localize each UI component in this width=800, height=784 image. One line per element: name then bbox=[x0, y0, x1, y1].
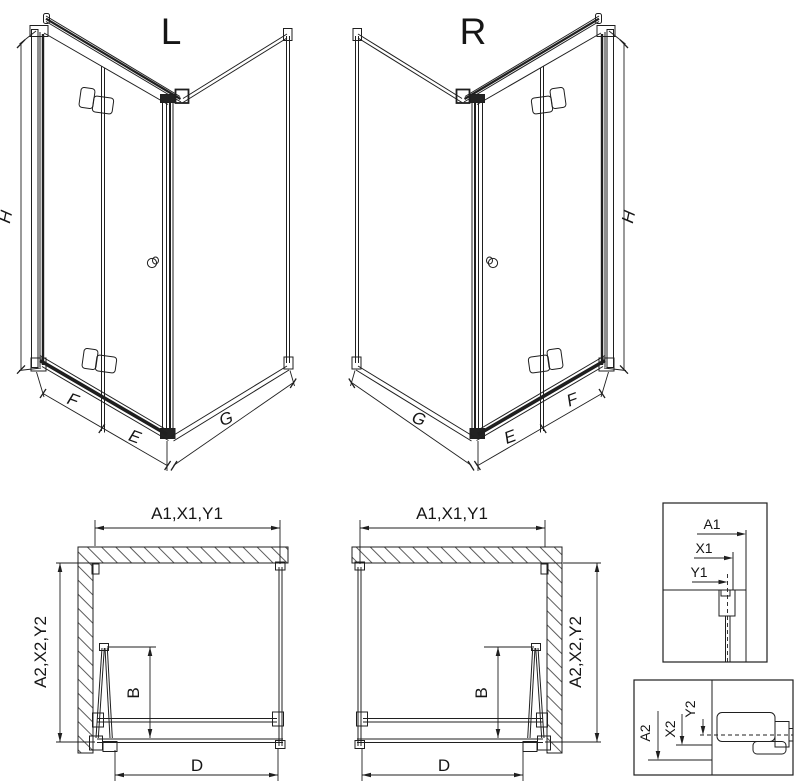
isometric-view-left: L H F E G bbox=[0, 11, 296, 471]
dim-label-e-left: E bbox=[126, 426, 144, 448]
detail-top-profile bbox=[719, 590, 735, 662]
plan-right-b-dim: B bbox=[472, 687, 491, 698]
dim-label-g-right: G bbox=[409, 408, 428, 430]
isometric-right-geometry bbox=[349, 14, 628, 472]
view-title-left: L bbox=[161, 11, 182, 52]
detail-bottom-a2: A2 bbox=[637, 724, 653, 741]
detail-top-x1: X1 bbox=[695, 540, 712, 556]
detail-bottom-y2: Y2 bbox=[682, 700, 698, 717]
dim-label-f-right: F bbox=[564, 389, 582, 411]
plan-left-top-dim: A1,X1,Y1 bbox=[151, 504, 223, 523]
detail-top-a1: A1 bbox=[703, 516, 720, 532]
dim-label-h-right: H bbox=[618, 208, 639, 225]
detail-bottom-x2: X2 bbox=[662, 720, 678, 737]
dim-label-f-left: F bbox=[65, 389, 83, 411]
view-title-right: R bbox=[460, 11, 487, 52]
plan-view-left: A1,X1,Y1 A2,X2,Y2 B D bbox=[31, 504, 288, 781]
detail-bottom-profile bbox=[717, 713, 793, 755]
detail-box-top: A1 X1 Y1 bbox=[663, 503, 767, 662]
technical-drawing-page: L H F E G R H G E F bbox=[0, 0, 800, 784]
plan-left-side-dim: A2,X2,Y2 bbox=[31, 616, 50, 688]
isometric-view-right: R H G E F bbox=[349, 11, 640, 471]
dim-label-e-right: E bbox=[502, 426, 520, 448]
shower-enclosure-drawing: L H F E G R H G E F bbox=[0, 0, 800, 784]
detail-top-y1: Y1 bbox=[690, 564, 707, 580]
plan-right-top-dim: A1,X1,Y1 bbox=[416, 504, 488, 523]
dim-label-h-left: H bbox=[0, 208, 16, 225]
plan-view-right: A1,X1,Y1 A2,X2,Y2 B D bbox=[352, 504, 601, 781]
plan-left-d-dim: D bbox=[191, 756, 203, 775]
plan-right-d-dim: D bbox=[438, 756, 450, 775]
detail-box-bottom: A2 X2 Y2 bbox=[634, 680, 793, 775]
plan-right-geometry bbox=[355, 562, 551, 752]
plan-left-b-dim: B bbox=[124, 687, 143, 698]
dim-label-g-left: G bbox=[217, 408, 236, 430]
plan-right-side-dim: A2,X2,Y2 bbox=[566, 616, 585, 688]
